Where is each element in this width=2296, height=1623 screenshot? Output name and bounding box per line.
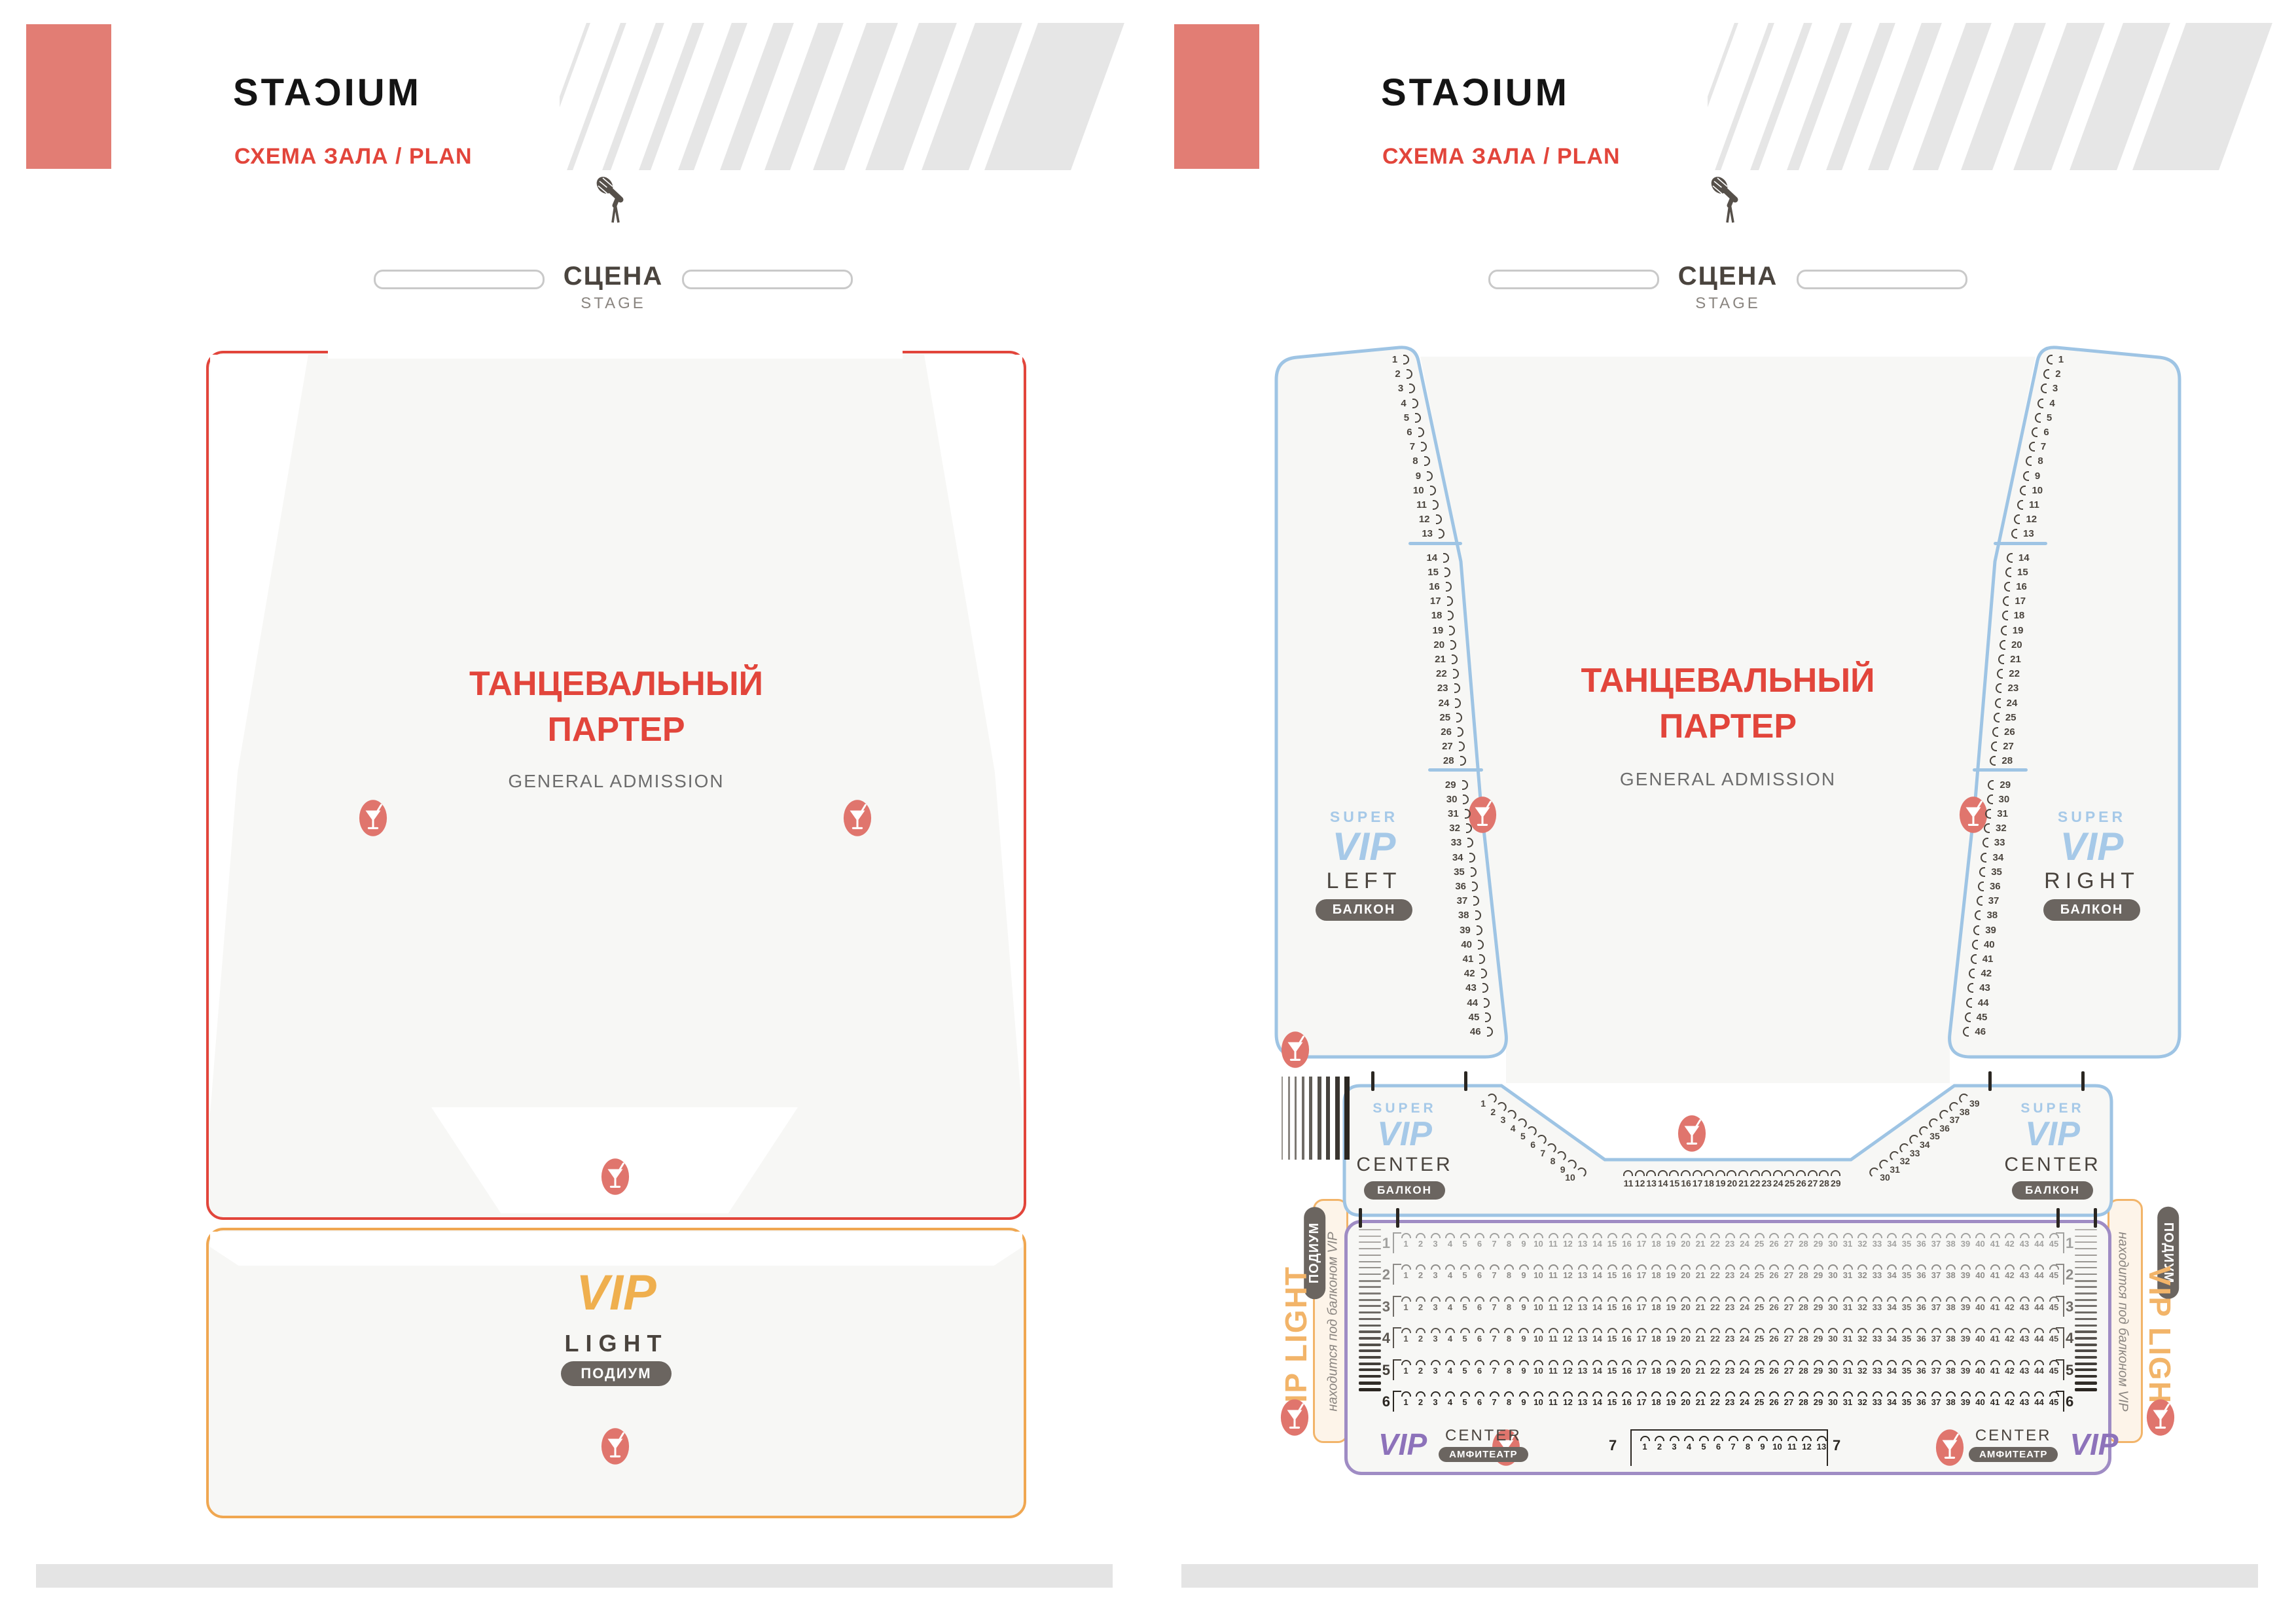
seat-amphi-r4-10[interactable]: 10 [1532,1328,1546,1344]
seat-amphi-r4-3[interactable]: 3 [1428,1328,1443,1344]
seat-amphi-r2-37[interactable]: 37 [1929,1264,1943,1280]
seat-right-balcony-12[interactable]: 12 [2012,514,2054,525]
seat-amphi-r5-30[interactable]: 30 [1826,1360,1840,1376]
seat-center-balcony-6[interactable] [1538,1133,1548,1145]
seat-amphi-r4-5[interactable]: 5 [1458,1328,1472,1344]
seat-amphi-r4-11[interactable]: 11 [1546,1328,1560,1344]
seat-center-balcony-4[interactable] [1518,1116,1528,1128]
seat-amphi-r5-6[interactable]: 6 [1473,1360,1487,1376]
seat-amphi-r1-17[interactable]: 17 [1634,1233,1649,1249]
seat-amphi-r3-34[interactable]: 34 [1885,1296,1899,1312]
seat-center-balcony-8[interactable] [1558,1149,1568,1161]
seat-right-balcony-38[interactable]: 38 [1973,910,2015,921]
seat-amphi-r4-9[interactable]: 9 [1516,1328,1531,1344]
seat-amphi-r1-22[interactable]: 22 [1708,1233,1723,1249]
seat-amphi-r3-41[interactable]: 41 [1988,1296,2002,1312]
seat-amphi-r2-24[interactable]: 24 [1738,1264,1752,1280]
seat-amphi-r6-31[interactable]: 31 [1840,1391,1855,1407]
seat-amphi-r2-11[interactable]: 11 [1546,1264,1560,1280]
seat-left-balcony-37[interactable]: 37 [1439,895,1481,906]
seat-amphi-r2-6[interactable]: 6 [1473,1264,1487,1280]
seat-amphi-r4-13[interactable]: 13 [1575,1328,1590,1344]
seat-amphi-r3-42[interactable]: 42 [2003,1296,2017,1312]
seat-amphi-r5-34[interactable]: 34 [1885,1360,1899,1376]
seat-amphi-r3-40[interactable]: 40 [1973,1296,1988,1312]
seat-amphi-r6-33[interactable]: 33 [1870,1391,1884,1407]
seat-amphi-r5-29[interactable]: 29 [1811,1360,1825,1376]
seat-right-balcony-43[interactable]: 43 [1965,982,2007,993]
seat-amphi-r5-32[interactable]: 32 [1856,1360,1870,1376]
seat-amphi-r2-43[interactable]: 43 [2017,1264,2032,1280]
seat-amphi-r4-26[interactable]: 26 [1767,1328,1782,1344]
seat-amphi-r5-38[interactable]: 38 [1944,1360,1958,1376]
seat-amphi-r3-22[interactable]: 22 [1708,1296,1723,1312]
seat-amphi-r6-5[interactable]: 5 [1458,1391,1472,1407]
seat-amphi-r5-3[interactable]: 3 [1428,1360,1443,1376]
seat-center-balcony-35[interactable] [1918,1124,1928,1136]
seat-amphi-r3-25[interactable]: 25 [1752,1296,1767,1312]
seat-amphi-r4-34[interactable]: 34 [1885,1328,1899,1344]
seat-amphi-r4-17[interactable]: 17 [1634,1328,1649,1344]
seat-amphi-r3-9[interactable]: 9 [1516,1296,1531,1312]
seat-amphi-r3-13[interactable]: 13 [1575,1296,1590,1312]
seat-amphi-r1-13[interactable]: 13 [1575,1233,1590,1249]
seat-amphi-r2-13[interactable]: 13 [1575,1264,1590,1280]
seat-amphi-r6-39[interactable]: 39 [1958,1391,1973,1407]
seat-amphi-r5-39[interactable]: 39 [1958,1360,1973,1376]
seat-left-balcony-35[interactable]: 35 [1437,866,1479,878]
seat-left-balcony-36[interactable]: 36 [1438,881,1480,892]
seat-left-balcony-21[interactable]: 21 [1418,654,1460,665]
seat-amphi-r2-27[interactable]: 27 [1782,1264,1796,1280]
seat-amphi-r3-20[interactable]: 20 [1679,1296,1693,1312]
seat-amphi-r3-33[interactable]: 33 [1870,1296,1884,1312]
seat-amphi-r2-22[interactable]: 22 [1708,1264,1723,1280]
seat-amphi-r6-32[interactable]: 32 [1856,1391,1870,1407]
seat-amphi-r1-6[interactable]: 6 [1473,1233,1487,1249]
seat-center-balcony-3[interactable] [1508,1108,1518,1120]
seat-right-balcony-16[interactable]: 16 [2002,581,2044,592]
seat-amphi-r3-37[interactable]: 37 [1929,1296,1943,1312]
seat-amphi-r5-5[interactable]: 5 [1458,1360,1472,1376]
seat-amphi-r3-18[interactable]: 18 [1649,1296,1664,1312]
seat-left-balcony-10[interactable]: 10 [1396,485,1438,496]
seat-right-balcony-40[interactable]: 40 [1970,939,2012,950]
seat-amphi-r2-44[interactable]: 44 [2032,1264,2047,1280]
seat-amphi-r4-33[interactable]: 33 [1870,1328,1884,1344]
seat-amphi-r1-43[interactable]: 43 [2017,1233,2032,1249]
seat-amphi-r3-7[interactable]: 7 [1487,1296,1501,1312]
seat-amphi-r3-36[interactable]: 36 [1914,1296,1929,1312]
seat-amphi-r6-17[interactable]: 17 [1634,1391,1649,1407]
seat-amphi-r5-18[interactable]: 18 [1649,1360,1664,1376]
seat-amphi-r1-4[interactable]: 4 [1443,1233,1458,1249]
seat-amphi-r4-30[interactable]: 30 [1826,1328,1840,1344]
seat-amphi-r5-12[interactable]: 12 [1561,1360,1575,1376]
seat-center-balcony-7[interactable] [1548,1141,1558,1153]
seat-amphi-r5-4[interactable]: 4 [1443,1360,1458,1376]
seat-amphi-r6-7[interactable]: 7 [1487,1391,1501,1407]
seat-amphi-r2-5[interactable]: 5 [1458,1264,1472,1280]
seat-amphi-r4-22[interactable]: 22 [1708,1328,1723,1344]
seat-center-balcony-32[interactable] [1888,1149,1898,1161]
seat-left-balcony-26[interactable]: 26 [1424,726,1465,738]
seat-center-balcony-36[interactable] [1928,1116,1937,1128]
seat-amphi-r2-3[interactable]: 3 [1428,1264,1443,1280]
seat-right-balcony-3[interactable]: 3 [2039,383,2081,394]
seat-amphi-r3-21[interactable]: 21 [1693,1296,1708,1312]
seat-right-balcony-1[interactable]: 1 [2045,354,2087,365]
seat-left-balcony-38[interactable]: 38 [1441,910,1483,921]
seat-left-balcony-3[interactable]: 3 [1375,383,1417,394]
seat-amphi-r4-18[interactable]: 18 [1649,1328,1664,1344]
seat-amphi-r4-27[interactable]: 27 [1782,1328,1796,1344]
seat-left-balcony-20[interactable]: 20 [1416,639,1458,651]
seat-amphi-r4-4[interactable]: 4 [1443,1328,1458,1344]
seat-right-balcony-24[interactable]: 24 [1993,698,2035,709]
seat-amphi-r1-31[interactable]: 31 [1840,1233,1855,1249]
seat-amphi-r4-2[interactable]: 2 [1414,1328,1428,1344]
seat-left-balcony-39[interactable]: 39 [1443,925,1484,936]
seat-amphi-r6-8[interactable]: 8 [1502,1391,1516,1407]
seat-center-balcony-31[interactable] [1878,1158,1888,1169]
seat-left-balcony-12[interactable]: 12 [1402,514,1444,525]
seat-amphi-r6-41[interactable]: 41 [1988,1391,2002,1407]
seat-amphi-r5-37[interactable]: 37 [1929,1360,1943,1376]
seat-right-balcony-15[interactable]: 15 [2003,567,2045,578]
seat-amphi-r4-44[interactable]: 44 [2032,1328,2047,1344]
seat-amphi-r1-27[interactable]: 27 [1782,1233,1796,1249]
seat-amphi-r5-22[interactable]: 22 [1708,1360,1723,1376]
seat-amphi-r5-33[interactable]: 33 [1870,1360,1884,1376]
seat-amphi-r4-29[interactable]: 29 [1811,1328,1825,1344]
seat-amphi-r3-26[interactable]: 26 [1767,1296,1782,1312]
seat-amphi-r3-30[interactable]: 30 [1826,1296,1840,1312]
seat-amphi-r3-5[interactable]: 5 [1458,1296,1472,1312]
seat-right-balcony-36[interactable]: 36 [1976,881,2018,892]
seat-amphi-r4-19[interactable]: 19 [1664,1328,1678,1344]
seat-amphi-r5-36[interactable]: 36 [1914,1360,1929,1376]
seat-amphi-r4-12[interactable]: 12 [1561,1328,1575,1344]
seat-amphi-r6-36[interactable]: 36 [1914,1391,1929,1407]
seat-left-balcony-24[interactable]: 24 [1421,698,1463,709]
seat-left-balcony-32[interactable]: 32 [1432,823,1474,834]
seat-amphi-r3-6[interactable]: 6 [1473,1296,1487,1312]
seat-amphi-r6-16[interactable]: 16 [1620,1391,1634,1407]
seat-amphi-r3-12[interactable]: 12 [1561,1296,1575,1312]
seat-amphi-r1-33[interactable]: 33 [1870,1233,1884,1249]
seat-amphi-r6-27[interactable]: 27 [1782,1391,1796,1407]
seat-amphi-r1-19[interactable]: 19 [1664,1233,1678,1249]
seat-amphi-r4-38[interactable]: 38 [1944,1328,1958,1344]
seat-amphi-r4-25[interactable]: 25 [1752,1328,1767,1344]
seat-amphi-r6-22[interactable]: 22 [1708,1391,1723,1407]
seat-amphi-r5-19[interactable]: 19 [1664,1360,1678,1376]
seat-amphi-r6-15[interactable]: 15 [1605,1391,1619,1407]
seat-amphi-r2-12[interactable]: 12 [1561,1264,1575,1280]
seat-amphi-r2-35[interactable]: 35 [1899,1264,1914,1280]
seat-left-balcony-13[interactable]: 13 [1405,528,1446,539]
seat-amphi-r2-23[interactable]: 23 [1723,1264,1737,1280]
seat-amphi-r1-7[interactable]: 7 [1487,1233,1501,1249]
seat-right-balcony-35[interactable]: 35 [1977,866,2019,878]
seat-amphi-r2-30[interactable]: 30 [1826,1264,1840,1280]
seat-amphi-r5-8[interactable]: 8 [1502,1360,1516,1376]
seat-left-balcony-14[interactable]: 14 [1409,552,1451,563]
general-admission-zone[interactable]: ТАНЦЕВАЛЬНЫЙ ПАРТЕР GENERAL ADMISSION [206,351,1026,1220]
seat-center-balcony-9[interactable] [1568,1158,1578,1169]
seat-left-balcony-45[interactable]: 45 [1451,1012,1493,1023]
seat-center-balcony-5[interactable] [1528,1124,1538,1136]
seat-amphi-r3-8[interactable]: 8 [1502,1296,1516,1312]
seat-amphi-r1-30[interactable]: 30 [1826,1233,1840,1249]
seat-amphi-r2-14[interactable]: 14 [1590,1264,1605,1280]
seat-right-balcony-18[interactable]: 18 [2000,610,2042,621]
seat-left-balcony-43[interactable]: 43 [1448,982,1490,993]
seat-amphi-r5-23[interactable]: 23 [1723,1360,1737,1376]
seat-amphi-r5-24[interactable]: 24 [1738,1360,1752,1376]
seat-amphi-r3-19[interactable]: 19 [1664,1296,1678,1312]
seat-amphi-r6-14[interactable]: 14 [1590,1391,1605,1407]
seat-amphi-r6-29[interactable]: 29 [1811,1391,1825,1407]
seat-amphi-r2-36[interactable]: 36 [1914,1264,1929,1280]
seat-amphi-r5-26[interactable]: 26 [1767,1360,1782,1376]
seat-amphi-r6-34[interactable]: 34 [1885,1391,1899,1407]
seat-amphi-r6-18[interactable]: 18 [1649,1391,1664,1407]
seat-center-balcony-38[interactable] [1948,1100,1958,1112]
seat-center-balcony-30[interactable] [1868,1166,1878,1177]
seat-amphi-r5-14[interactable]: 14 [1590,1360,1605,1376]
seat-amphi-r1-10[interactable]: 10 [1532,1233,1546,1249]
seat-amphi-r2-33[interactable]: 33 [1870,1264,1884,1280]
seat-right-balcony-17[interactable]: 17 [2001,596,2043,607]
seat-right-balcony-41[interactable]: 41 [1969,954,2011,965]
seat-left-balcony-28[interactable]: 28 [1426,755,1468,766]
seat-left-balcony-19[interactable]: 19 [1415,625,1457,636]
seat-amphi-r4-14[interactable]: 14 [1590,1328,1605,1344]
seat-left-balcony-42[interactable]: 42 [1447,968,1489,979]
seat-amphi-r5-28[interactable]: 28 [1797,1360,1811,1376]
seat-amphi-r1-20[interactable]: 20 [1679,1233,1693,1249]
seat-left-balcony-15[interactable]: 15 [1410,567,1452,578]
seat-amphi-r5-20[interactable]: 20 [1679,1360,1693,1376]
seat-left-balcony-9[interactable]: 9 [1393,471,1435,482]
seat-right-balcony-37[interactable]: 37 [1975,895,2017,906]
seat-left-balcony-46[interactable]: 46 [1453,1026,1495,1037]
seat-amphi-r2-31[interactable]: 31 [1840,1264,1855,1280]
seat-amphi-r5-2[interactable]: 2 [1414,1360,1428,1376]
seat-amphi-r6-25[interactable]: 25 [1752,1391,1767,1407]
seat-amphi-r2-15[interactable]: 15 [1605,1264,1619,1280]
seat-amphi-r6-42[interactable]: 42 [2003,1391,2017,1407]
seat-amphi-r1-15[interactable]: 15 [1605,1233,1619,1249]
seat-amphi-r3-28[interactable]: 28 [1797,1296,1811,1312]
seat-amphi-r2-42[interactable]: 42 [2003,1264,2017,1280]
seat-left-balcony-29[interactable]: 29 [1428,779,1470,791]
seat-right-balcony-34[interactable]: 34 [1979,852,2020,863]
seat-left-balcony-33[interactable]: 33 [1433,837,1475,848]
seat-amphi-r2-38[interactable]: 38 [1944,1264,1958,1280]
seat-right-balcony-19[interactable]: 19 [1999,625,2041,636]
seat-amphi-r6-21[interactable]: 21 [1693,1391,1708,1407]
seat-right-balcony-30[interactable]: 30 [1985,794,2027,805]
seat-amphi-r6-10[interactable]: 10 [1532,1391,1546,1407]
seat-amphi-r2-29[interactable]: 29 [1811,1264,1825,1280]
seat-center-balcony-39[interactable] [1958,1092,1967,1103]
seat-right-balcony-39[interactable]: 39 [1971,925,2013,936]
seat-amphi-r4-23[interactable]: 23 [1723,1328,1737,1344]
seat-amphi-r1-8[interactable]: 8 [1502,1233,1516,1249]
seat-amphi-r2-21[interactable]: 21 [1693,1264,1708,1280]
seat-amphi-r2-39[interactable]: 39 [1958,1264,1973,1280]
seat-right-balcony-21[interactable]: 21 [1996,654,2038,665]
seat-amphi-r2-18[interactable]: 18 [1649,1264,1664,1280]
seat-right-balcony-14[interactable]: 14 [2005,552,2047,563]
vip-light-zone[interactable]: VIP LIGHT ПОДИУМ [206,1228,1026,1518]
seat-amphi-r3-39[interactable]: 39 [1958,1296,1973,1312]
seat-amphi-r4-37[interactable]: 37 [1929,1328,1943,1344]
seat-right-balcony-45[interactable]: 45 [1963,1012,2005,1023]
seat-center-balcony-2[interactable] [1498,1100,1508,1112]
seat-amphi-r6-26[interactable]: 26 [1767,1391,1782,1407]
seat-right-balcony-6[interactable]: 6 [2030,427,2072,438]
seat-amphi-r1-26[interactable]: 26 [1767,1233,1782,1249]
seat-right-balcony-28[interactable]: 28 [1988,755,2030,766]
seat-amphi-r2-4[interactable]: 4 [1443,1264,1458,1280]
seat-amphi-r2-34[interactable]: 34 [1885,1264,1899,1280]
seat-amphi-r5-9[interactable]: 9 [1516,1360,1531,1376]
seat-right-balcony-25[interactable]: 25 [1992,712,2034,723]
seat-amphi-r2-8[interactable]: 8 [1502,1264,1516,1280]
seat-amphi-r1-29[interactable]: 29 [1811,1233,1825,1249]
seat-amphi-r1-32[interactable]: 32 [1856,1233,1870,1249]
seat-amphi-r1-41[interactable]: 41 [1988,1233,2002,1249]
seat-amphi-r6-35[interactable]: 35 [1899,1391,1914,1407]
seat-amphi-r5-27[interactable]: 27 [1782,1360,1796,1376]
seat-amphi-r4-39[interactable]: 39 [1958,1328,1973,1344]
seat-amphi-r1-39[interactable]: 39 [1958,1233,1973,1249]
seat-right-balcony-32[interactable]: 32 [1982,823,2024,834]
seat-amphi-r6-19[interactable]: 19 [1664,1391,1678,1407]
seat-amphi-r6-30[interactable]: 30 [1826,1391,1840,1407]
seat-amphi-r3-3[interactable]: 3 [1428,1296,1443,1312]
seat-amphi-r3-14[interactable]: 14 [1590,1296,1605,1312]
seat-amphi-r4-41[interactable]: 41 [1988,1328,2002,1344]
seat-amphi-r3-24[interactable]: 24 [1738,1296,1752,1312]
seat-amphi-r1-38[interactable]: 38 [1944,1233,1958,1249]
seat-amphi-r5-43[interactable]: 43 [2017,1360,2032,1376]
seat-right-balcony-27[interactable]: 27 [1989,741,2031,752]
seat-amphi-r1-34[interactable]: 34 [1885,1233,1899,1249]
seat-amphi-r2-7[interactable]: 7 [1487,1264,1501,1280]
seat-amphi-r6-38[interactable]: 38 [1944,1391,1958,1407]
seat-amphi-r2-40[interactable]: 40 [1973,1264,1988,1280]
seat-amphi-r2-10[interactable]: 10 [1532,1264,1546,1280]
seat-center-balcony-1[interactable] [1488,1092,1498,1103]
seat-amphi-r6-3[interactable]: 3 [1428,1391,1443,1407]
seat-right-balcony-2[interactable]: 2 [2041,368,2083,380]
seat-amphi-r6-20[interactable]: 20 [1679,1391,1693,1407]
seat-amphi-r4-15[interactable]: 15 [1605,1328,1619,1344]
seat-amphi-r3-15[interactable]: 15 [1605,1296,1619,1312]
seat-amphi-r5-42[interactable]: 42 [2003,1360,2017,1376]
seat-amphi-r6-44[interactable]: 44 [2032,1391,2047,1407]
seat-amphi-r1-9[interactable]: 9 [1516,1233,1531,1249]
seat-amphi-r1-18[interactable]: 18 [1649,1233,1664,1249]
seat-amphi-r3-43[interactable]: 43 [2017,1296,2032,1312]
seat-amphi-r4-28[interactable]: 28 [1797,1328,1811,1344]
seat-amphi-r5-25[interactable]: 25 [1752,1360,1767,1376]
seat-right-balcony-26[interactable]: 26 [1990,726,2032,738]
seat-amphi-r6-23[interactable]: 23 [1723,1391,1737,1407]
seat-amphi-r3-10[interactable]: 10 [1532,1296,1546,1312]
seat-amphi-r5-44[interactable]: 44 [2032,1360,2047,1376]
seat-amphi-r5-35[interactable]: 35 [1899,1360,1914,1376]
seat-left-balcony-17[interactable]: 17 [1413,596,1455,607]
seat-amphi-r3-4[interactable]: 4 [1443,1296,1458,1312]
seat-amphi-r6-40[interactable]: 40 [1973,1391,1988,1407]
seat-amphi-r3-35[interactable]: 35 [1899,1296,1914,1312]
seat-amphi-r1-11[interactable]: 11 [1546,1233,1560,1249]
seat-left-balcony-23[interactable]: 23 [1420,683,1462,694]
seat-amphi-r3-44[interactable]: 44 [2032,1296,2047,1312]
seat-right-balcony-7[interactable]: 7 [2027,441,2069,452]
seat-amphi-r5-40[interactable]: 40 [1973,1360,1988,1376]
seat-right-balcony-46[interactable]: 46 [1961,1026,2003,1037]
seat-right-balcony-29[interactable]: 29 [1986,779,2028,791]
seat-amphi-r1-16[interactable]: 16 [1620,1233,1634,1249]
seat-right-balcony-23[interactable]: 23 [1994,683,2036,694]
seat-amphi-r6-13[interactable]: 13 [1575,1391,1590,1407]
seat-amphi-r1-24[interactable]: 24 [1738,1233,1752,1249]
seat-center-balcony-10[interactable] [1578,1166,1588,1177]
seat-right-balcony-22[interactable]: 22 [1995,668,2037,679]
seat-amphi-r1-12[interactable]: 12 [1561,1233,1575,1249]
seat-amphi-r4-7[interactable]: 7 [1487,1328,1501,1344]
seat-amphi-r4-31[interactable]: 31 [1840,1328,1855,1344]
seat-amphi-r2-20[interactable]: 20 [1679,1264,1693,1280]
seat-amphi-r2-28[interactable]: 28 [1797,1264,1811,1280]
seat-right-balcony-4[interactable]: 4 [2036,398,2077,409]
seat-left-balcony-7[interactable]: 7 [1387,441,1429,452]
seat-amphi-r3-38[interactable]: 38 [1944,1296,1958,1312]
seat-amphi-r2-17[interactable]: 17 [1634,1264,1649,1280]
seat-amphi-r4-42[interactable]: 42 [2003,1328,2017,1344]
seat-amphi-r4-40[interactable]: 40 [1973,1328,1988,1344]
seat-amphi-r6-37[interactable]: 37 [1929,1391,1943,1407]
seat-amphi-r3-27[interactable]: 27 [1782,1296,1796,1312]
seat-right-balcony-44[interactable]: 44 [1964,997,2006,1008]
seat-right-balcony-5[interactable]: 5 [2033,412,2075,423]
seat-amphi-r1-37[interactable]: 37 [1929,1233,1943,1249]
seat-amphi-r1-40[interactable]: 40 [1973,1233,1988,1249]
seat-left-balcony-2[interactable]: 2 [1372,368,1414,380]
seat-amphi-r1-25[interactable]: 25 [1752,1233,1767,1249]
seat-left-balcony-16[interactable]: 16 [1412,581,1454,592]
seat-right-balcony-9[interactable]: 9 [2021,471,2063,482]
seat-amphi-r1-36[interactable]: 36 [1914,1233,1929,1249]
seat-amphi-r4-6[interactable]: 6 [1473,1328,1487,1344]
seat-amphi-r4-43[interactable]: 43 [2017,1328,2032,1344]
seat-amphi-r4-20[interactable]: 20 [1679,1328,1693,1344]
seat-amphi-r1-28[interactable]: 28 [1797,1233,1811,1249]
seat-right-balcony-13[interactable]: 13 [2009,528,2051,539]
seat-amphi-r6-6[interactable]: 6 [1473,1391,1487,1407]
seat-amphi-r2-9[interactable]: 9 [1516,1264,1531,1280]
seat-right-balcony-20[interactable]: 20 [1998,639,2039,651]
seat-amphi-r2-26[interactable]: 26 [1767,1264,1782,1280]
seat-right-balcony-8[interactable]: 8 [2024,455,2066,467]
